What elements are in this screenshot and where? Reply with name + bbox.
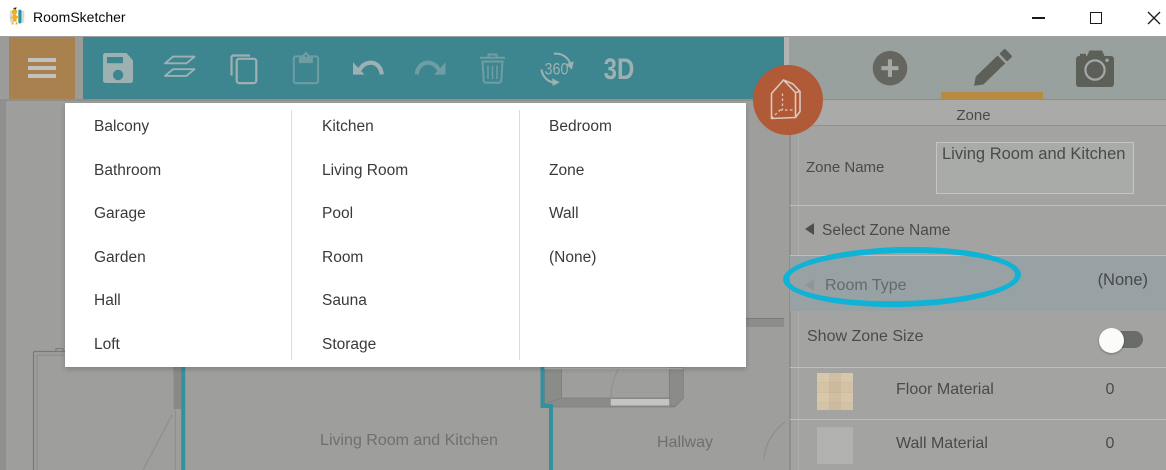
svg-text:360: 360 — [545, 61, 569, 79]
svg-text:3D: 3D — [604, 51, 635, 85]
